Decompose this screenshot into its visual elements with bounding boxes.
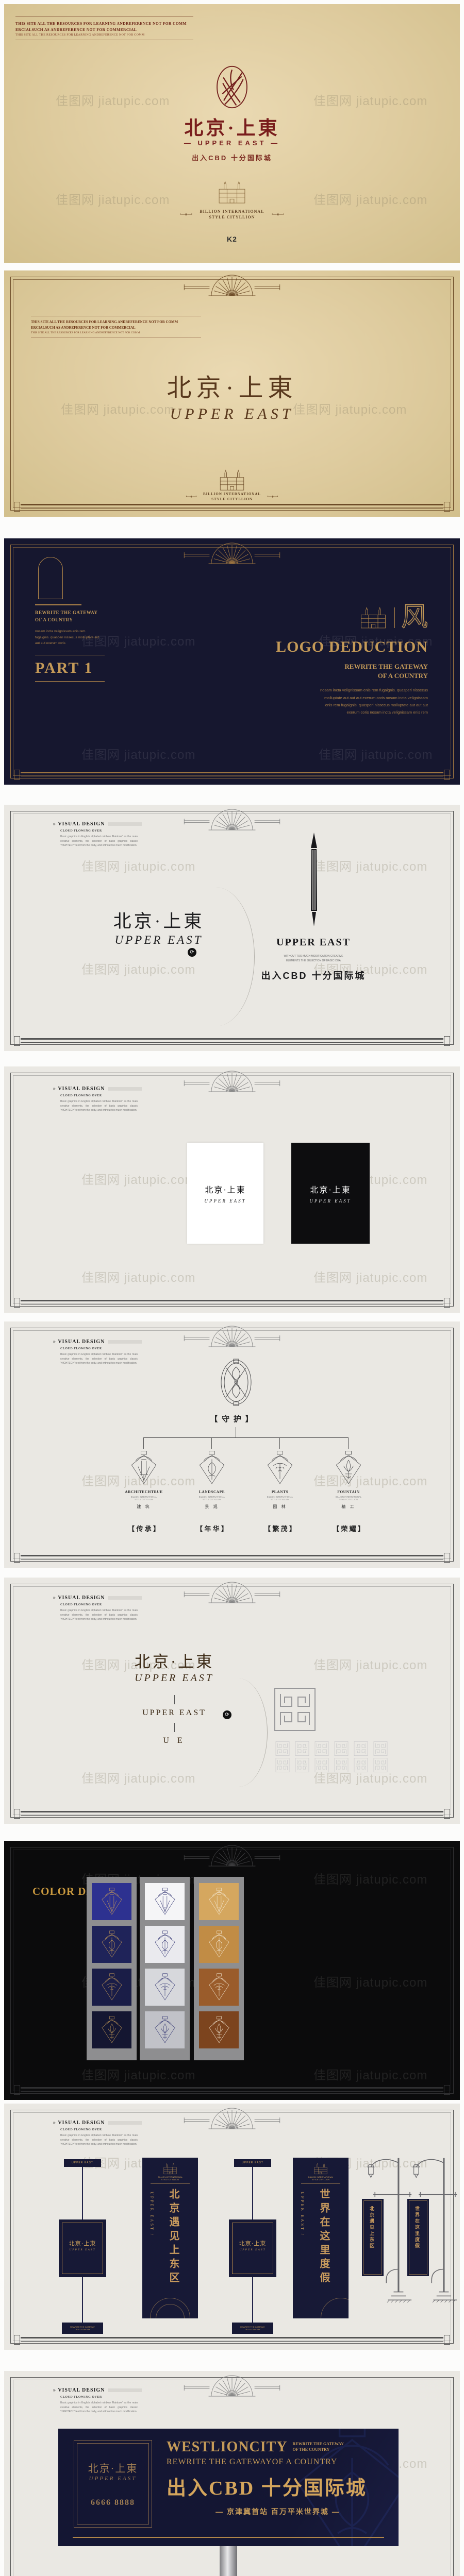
section-body: Basic graphics in English alphabet rainb… [60, 1099, 138, 1113]
billboard-copy: WESTLIONCITY REWRITE THE GATEWAY OF THE … [167, 2439, 389, 2517]
rotate-arrow-icon: ⟳ [188, 948, 196, 957]
license-line: ERCIALSUCH AS ANDREFERENCE NOT FOR COMME… [15, 27, 193, 32]
billboard-baseline [73, 2537, 384, 2538]
board-part1-divider: 佳图网 jiatupic.com 佳图网 jiatupic.com 佳图网 ji… [4, 538, 460, 785]
company-line: STYLE CITYLLION [200, 215, 264, 219]
ornament-bar: •—◈—• [186, 496, 197, 499]
derive-sub: STYLE CITYLLION [115, 1498, 172, 1501]
billboard-line2: REWRITE THE GATEWAYOF A COUNTRY [167, 2458, 389, 2467]
derive-cn: 精 工 [320, 1504, 377, 1510]
fan-ornament-icon [180, 1070, 284, 1093]
arch-glyph [38, 557, 63, 599]
fan-ornament-icon [180, 2375, 284, 2397]
watermark: 佳图网 jiatupic.com [313, 2065, 427, 2083]
tree-drop [143, 1437, 144, 1449]
part1-label: PART 1 [35, 659, 133, 677]
color-swatch [145, 1926, 185, 1963]
billboard-headline: 出入CBD 十分国际城 [167, 2472, 389, 2500]
transition-arc [177, 887, 255, 1026]
board-monogram: » VISUAL DESIGN CLOUD FLOWING OVER Basic… [4, 1578, 460, 1824]
fan-ornament-icon [180, 274, 284, 297]
watermark: 佳图网 jiatupic.com [313, 1655, 427, 1673]
license-line: THIS SITE ALL THE RESOURCES FOR LEARNING… [15, 33, 193, 37]
pattern-tile [352, 1758, 370, 1772]
billboard-face: 北京·上東 UPPER EAST 6666 8888 WESTLIONCITY … [58, 2429, 399, 2546]
sign-pole [82, 2277, 83, 2323]
plate-line: OF A COUNTRY [62, 2328, 103, 2331]
street-banner-flat: BILLION INTERNATIONAL STYLE CITYLLION UP… [142, 2158, 198, 2318]
tree-drop [348, 1437, 349, 1449]
sign-logo-en: UPPER EAST [229, 2248, 276, 2251]
ornament-bar: •—◈—• [268, 496, 278, 499]
ornament-landscape-icon [197, 1450, 227, 1485]
watermark: 佳图网 jiatupic.com [81, 2065, 195, 2083]
brand-name-cn: 北京·上東 [4, 112, 460, 140]
billboard-phone: 6666 8888 [74, 2498, 152, 2507]
watermark: 佳图网 jiatupic.com [313, 1972, 427, 1990]
billboard-subline: — 京津冀首站 百万平米世界城 — [167, 2506, 389, 2517]
part1-left-body: nosam incta velignissum enis rem fugaign… [35, 629, 100, 647]
license-line: THIS SITE ALL THE RESOURCES FOR LEARNING… [31, 331, 201, 334]
watermark: 佳图网 jiatupic.com [81, 1267, 195, 1285]
section-title: » VISUAL DESIGN [53, 1339, 142, 1345]
pattern-tile [274, 1741, 291, 1756]
watermark: 佳图网 jiatupic.com [313, 1267, 427, 1285]
banner-company: STYLE CITYLLION [293, 2178, 349, 2181]
base-rail [21, 1811, 443, 1816]
tower-note-line: WITHOUT TOO MUCH MODIFICATION CREATIVE [252, 954, 375, 959]
banner-bottom-ornament [321, 2298, 349, 2318]
gold-rule [35, 655, 105, 655]
building-icon [162, 2163, 178, 2175]
section-title: » VISUAL DESIGN [53, 1086, 142, 1092]
derive-sub: STYLE CITYLLION [320, 1498, 377, 1501]
logotype-cn: 北京·上東 [4, 367, 460, 403]
board-billboard: » VISUAL DESIGN CLOUD FLOWING OVER Basic… [4, 2371, 460, 2576]
billboard-logo-cn: 北京·上東 [74, 2460, 152, 2475]
pattern-tile [293, 1758, 311, 1772]
board-logo-concept: 佳图网 jiatupic.com 佳图网 jiatupic.com 佳图网 ji… [4, 805, 460, 1051]
tower-note: WITHOUT TOO MUCH MODIFICATION CREATIVE E… [252, 954, 375, 963]
section-subtitle: CLOUD FLOWING OVER [60, 1347, 142, 1350]
gold-rule [35, 604, 81, 605]
card-logo-cn: 北京·上東 [291, 1183, 370, 1195]
gateway-heading: REWRITE THE GATEWAY OF A COUNTRY [35, 609, 133, 623]
watermark: 佳图网 jiatupic.com [81, 744, 195, 762]
watermark: 佳图网 jiatupic.com [313, 856, 427, 874]
derive-item-caption: PLANTS BILLION INTERNATIONAL STYLE CITYL… [252, 1489, 308, 1510]
color-swatch [199, 1926, 239, 1963]
section-body: Basic graphics in English alphabet rainb… [60, 1608, 138, 1622]
watermark: 佳图网 jiatupic.com [81, 856, 195, 874]
sign-bottom-plate: REWRITE THE GATEWAY OF A COUNTRY [232, 2323, 273, 2334]
section-subtitle: CLOUD FLOWING OVER [60, 2128, 142, 2131]
divider-bar [394, 607, 395, 628]
color-swatch [92, 1883, 131, 1920]
swatch-column-gold [194, 1877, 244, 2060]
swatch-column-silver [140, 1877, 190, 2060]
logo-cn: 北京·上東 [112, 1649, 236, 1672]
banner-divider [301, 2183, 340, 2184]
pattern-tile [352, 1741, 370, 1756]
building-icon [358, 606, 388, 629]
sign-square-frame: 北京·上東 UPPER EAST [229, 2219, 276, 2277]
sign-top-plate: UPPER EAST [234, 2159, 271, 2167]
sign-logo-en: UPPER EAST [59, 2248, 106, 2251]
sign-logo-cn: 北京·上東 [59, 2239, 106, 2247]
section-header: » VISUAL DESIGN CLOUD FLOWING OVER Basic… [53, 1339, 142, 1366]
building-icon [313, 2163, 328, 2175]
billboard-brand: WESTLIONCITY [167, 2439, 288, 2455]
logo-en-script: UPPER EAST [112, 1672, 236, 1684]
sign-post-flat: UPPER EAST 北京·上東 UPPER EAST REWRITE THE … [58, 2158, 107, 2335]
card-logo-en: UPPER EAST [291, 1198, 370, 1204]
derive-sub: STYLE CITYLLION [252, 1498, 308, 1501]
license-note: THIS SITE ALL THE RESOURCES FOR LEARNING… [15, 16, 193, 40]
billboard-logo-en: UPPER EAST [74, 2476, 152, 2482]
banner-company: STYLE CITYLLION [142, 2178, 198, 2181]
connector-bar [174, 1723, 175, 1732]
part1-right-body: nosam incta velignissam enis rem fugaign… [320, 687, 428, 716]
fan-ornament-icon [180, 1844, 284, 1867]
derive-cn: 园 林 [252, 1504, 308, 1510]
color-swatch [92, 1969, 131, 2006]
color-swatch [145, 1969, 185, 2006]
gateway-line: OF A COUNTRY [253, 671, 428, 681]
logotype-en: UPPER EAST [4, 405, 460, 423]
pattern-tile [372, 1758, 389, 1772]
base-rail [21, 2337, 443, 2342]
building-icon [216, 180, 248, 204]
derive-en: ARCHITECHTRUE [115, 1489, 172, 1494]
section-header: » VISUAL DESIGN CLOUD FLOWING OVER Basic… [53, 2120, 142, 2147]
card-logo-cn: 北京·上東 [187, 1183, 263, 1195]
sign-top-plate: UPPER EAST [64, 2159, 101, 2167]
fan-ornament-icon [180, 542, 284, 565]
board-street-banners: » VISUAL DESIGN CLOUD FLOWING OVER Basic… [4, 2104, 460, 2350]
part1-left-block: REWRITE THE GATEWAY OF A COUNTRY nosam i… [35, 557, 133, 682]
watermark: 佳图网 jiatupic.com [319, 744, 433, 762]
section-body: Basic graphics in English alphabet rainb… [60, 835, 138, 848]
derive-tag: 【 年 华 】 [184, 1523, 240, 1533]
sign-post-flat: UPPER EAST 北京·上東 UPPER EAST REWRITE THE … [228, 2158, 277, 2335]
sign-pole [252, 2167, 253, 2219]
color-swatch [145, 1883, 185, 1920]
ornament-architecture-icon [129, 1450, 159, 1485]
color-swatch [199, 2011, 239, 2048]
pattern-tile [293, 1741, 311, 1756]
derive-tag: 【 荣 耀 】 [320, 1523, 377, 1533]
section-body: Basic graphics in English alphabet rainb… [60, 2401, 138, 2414]
sign-pole [82, 2167, 83, 2219]
derive-sub: STYLE CITYLLION [184, 1498, 240, 1501]
color-swatch [199, 1883, 239, 1920]
company-lockup: •—◈—• BILLION INTERNATIONAL STYLE CITYLL… [4, 209, 460, 219]
base-rail [21, 1038, 443, 1043]
derive-item-caption: ARCHITECHTRUE BILLION INTERNATIONAL STYL… [115, 1489, 172, 1510]
derive-tag: 【 传 承 】 [115, 1523, 172, 1533]
developer-logo: K2 [4, 235, 460, 243]
part1-title: LOGO DEDUCTION [253, 638, 428, 656]
watermark: 佳图网 jiatupic.com [313, 190, 427, 208]
fan-ornament-icon [180, 1581, 284, 1604]
gateway-line: REWRITE THE GATEWAY [253, 662, 428, 671]
watermark: 佳图网 jiatupic.com [56, 91, 170, 109]
section-title: » VISUAL DESIGN [53, 821, 142, 827]
fan-ornament-icon [180, 808, 284, 831]
ornament-bar: •—◈—• [180, 213, 192, 216]
card-logo-en: UPPER EAST [187, 1198, 263, 1204]
section-subtitle: CLOUD FLOWING OVER [60, 2396, 142, 2399]
derive-cn: 景 观 [184, 1504, 240, 1510]
gateway-heading: REWRITE THE GATEWAY OF A COUNTRY [253, 662, 428, 681]
section-body: Basic graphics in English alphabet rainb… [60, 2133, 138, 2147]
ornament-plants-icon [265, 1450, 295, 1485]
license-line: THIS SITE ALL THE RESOURCES FOR LEARNING… [31, 320, 201, 324]
derive-en: PLANTS [252, 1489, 308, 1494]
watermark: 佳图网 jiatupic.com [81, 1768, 195, 1786]
color-swatch [145, 2011, 185, 2048]
derive-item-caption: FOUNTAIN BILLION INTERNATIONAL STYLE CIT… [320, 1489, 377, 1510]
board-ornament-derivation: » VISUAL DESIGN CLOUD FLOWING OVER Basic… [4, 1321, 460, 1568]
rotate-arrow-icon: ⟳ [223, 1710, 231, 1719]
base-rail [21, 772, 443, 776]
tree-drop [211, 1437, 212, 1449]
derive-en: FOUNTAIN [320, 1489, 377, 1494]
oval-medallion-icon [220, 1359, 253, 1406]
derive-cn: 建 筑 [115, 1504, 172, 1510]
company-lockup: •—◈—• BILLION INTERNATIONAL STYLE CITYLL… [4, 492, 460, 501]
base-rail [21, 1555, 443, 1560]
section-title: » VISUAL DESIGN [53, 2120, 142, 2126]
section-subtitle: CLOUD FLOWING OVER [60, 1094, 142, 1097]
fan-ornament-icon [180, 1325, 284, 1348]
gateway-line: REWRITE THE GATEWAY [35, 609, 133, 617]
section-header: » VISUAL DESIGN CLOUD FLOWING OVER Basic… [53, 1086, 142, 1113]
watermark: 佳图网 jiatupic.com [313, 1471, 427, 1489]
section-header: » VISUAL DESIGN CLOUD FLOWING OVER Basic… [53, 2387, 142, 2414]
sign-pole [252, 2277, 253, 2323]
lamp-banner-text: 北京遇见上东区 [369, 2206, 375, 2249]
derive-tag: 【 繁 茂 】 [252, 1523, 308, 1533]
board-color-define: 佳图网 jiatupic.com 佳图网 jiatupic.com 佳图网 ji… [4, 1841, 460, 2100]
license-line: ERCIALSUCH AS ANDREFERENCE NOT FOR COMME… [31, 326, 201, 330]
company-line: STYLE CITYLLION [203, 497, 261, 501]
watermark: 佳图网 jiatupic.com [56, 190, 170, 208]
billboard-logo-frame: 北京·上東 UPPER EAST 6666 8888 [74, 2440, 152, 2528]
fan-ornament-icon [180, 2107, 284, 2130]
watermark: 佳图网 jiatupic.com [313, 1869, 427, 1887]
tree-line-h [143, 1437, 349, 1438]
gold-rule [35, 681, 105, 682]
building-icon [218, 469, 246, 491]
company-line: BILLION INTERNATIONAL [203, 492, 261, 496]
part1-right-block: 风 LOGO DEDUCTION REWRITE THE GATEWAY OF … [253, 604, 428, 716]
logo-card-black: 北京·上東 UPPER EAST [291, 1143, 370, 1244]
board-logo-bw: » VISUAL DESIGN CLOUD FLOWING OVER Basic… [4, 1066, 460, 1313]
sign-bottom-plate: REWRITE THE GATEWAY OF A COUNTRY [62, 2323, 103, 2334]
wind-character: 风 [401, 604, 428, 631]
brand-name-en: — UPPER EAST — [4, 139, 460, 147]
banner-en-vertical: UPPER EAST / [300, 2192, 305, 2236]
monogram-word: UPPER EAST [123, 1708, 226, 1718]
sign-square-frame: 北京·上東 UPPER EAST [59, 2219, 106, 2277]
derive-item-caption: LANDSCAPE BILLION INTERNATIONAL STYLE CI… [184, 1489, 240, 1510]
pattern-tile [372, 1741, 389, 1756]
brand-slogan: 出入CBD 十分国际城 [4, 152, 460, 162]
color-swatch [92, 1926, 131, 1963]
ornament-bar: •—◈—• [272, 213, 284, 216]
tower-icon [307, 833, 321, 927]
plate-line: OF A COUNTRY [232, 2328, 273, 2331]
banner-divider [151, 2183, 190, 2184]
watermark: 佳图网 jiatupic.com [313, 91, 427, 109]
derive-en: LANDSCAPE [184, 1489, 240, 1494]
board-logotype-beige: THIS SITE ALL THE RESOURCES FOR LEARNING… [4, 270, 460, 517]
maze-monogram-icon [274, 1688, 316, 1731]
banner-en-vertical: UPPER EAST / [150, 2192, 154, 2236]
section-subtitle: CLOUD FLOWING OVER [60, 829, 142, 833]
billboard-side-line: REWRITE THE GATEWAY [293, 2442, 344, 2446]
banner-text-cn: 北京遇见上东区 [166, 2189, 181, 2286]
sign-logo-cn: 北京·上東 [229, 2239, 276, 2247]
pattern-tile [274, 1758, 291, 1772]
transition-arc [210, 1679, 268, 1787]
color-swatch [199, 1969, 239, 2006]
gateway-line: OF A COUNTRY [35, 617, 133, 624]
guard-label: 【 守 护 】 [4, 1413, 460, 1424]
billboard-pole [220, 2546, 237, 2576]
pattern-tile [313, 1758, 330, 1772]
base-rail [21, 2087, 443, 2092]
tree-drop [279, 1437, 280, 1449]
billboard-side-line: OF THE COUNTRY [293, 2447, 344, 2452]
tower-slogan: 出入CBD 十分国际城 [252, 969, 375, 982]
tree-line-v [236, 1427, 236, 1437]
color-swatch [92, 2011, 131, 2048]
company-line: BILLION INTERNATIONAL [200, 209, 264, 214]
pattern-tile [333, 1741, 350, 1756]
pattern-tile-grid [274, 1741, 393, 1772]
lamp-banner: 世界在这里度假 [407, 2199, 429, 2276]
base-rail [21, 504, 443, 509]
section-body: Basic graphics in English alphabet rainb… [60, 1352, 138, 1366]
tower-title: UPPER EAST [252, 937, 375, 948]
swatch-column-blue [87, 1877, 137, 2060]
license-line: THIS SITE ALL THE RESOURCES FOR LEARNING… [15, 21, 193, 26]
section-subtitle: CLOUD FLOWING OVER [60, 1603, 142, 1606]
section-header: » VISUAL DESIGN CLOUD FLOWING OVER Basic… [53, 1595, 142, 1622]
section-header: » VISUAL DESIGN CLOUD FLOWING OVER Basic… [53, 821, 142, 848]
leaf-medallion-icon [215, 65, 249, 109]
section-title: » VISUAL DESIGN [53, 2387, 142, 2393]
watermark: 佳图网 jiatupic.com [81, 1170, 195, 1188]
ornament-fountain-icon [334, 1450, 363, 1485]
pattern-tile [313, 1741, 330, 1756]
brand-design-board-page: THIS SITE ALL THE RESOURCES FOR LEARNING… [0, 0, 464, 2576]
base-rail [21, 1300, 443, 1304]
banner-text-cn: 世界在这里度假 [317, 2189, 332, 2286]
lamp-banner-text: 世界在这里度假 [414, 2206, 421, 2249]
section-title: » VISUAL DESIGN [53, 1595, 142, 1601]
street-banner-flat: BILLION INTERNATIONAL STYLE CITYLLION UP… [293, 2158, 349, 2318]
tower-note-line: ELEMENTS THE SELECTION OF BASIC IDEA [252, 959, 375, 963]
pattern-tile [333, 1758, 350, 1772]
connector-bar [174, 1695, 175, 1704]
board-cover-front: THIS SITE ALL THE RESOURCES FOR LEARNING… [4, 4, 460, 263]
license-note: THIS SITE ALL THE RESOURCES FOR LEARNING… [31, 316, 201, 337]
logo-card-white: 北京·上東 UPPER EAST [187, 1143, 263, 1244]
lamp-banner: 北京遇见上东区 [362, 2199, 384, 2276]
